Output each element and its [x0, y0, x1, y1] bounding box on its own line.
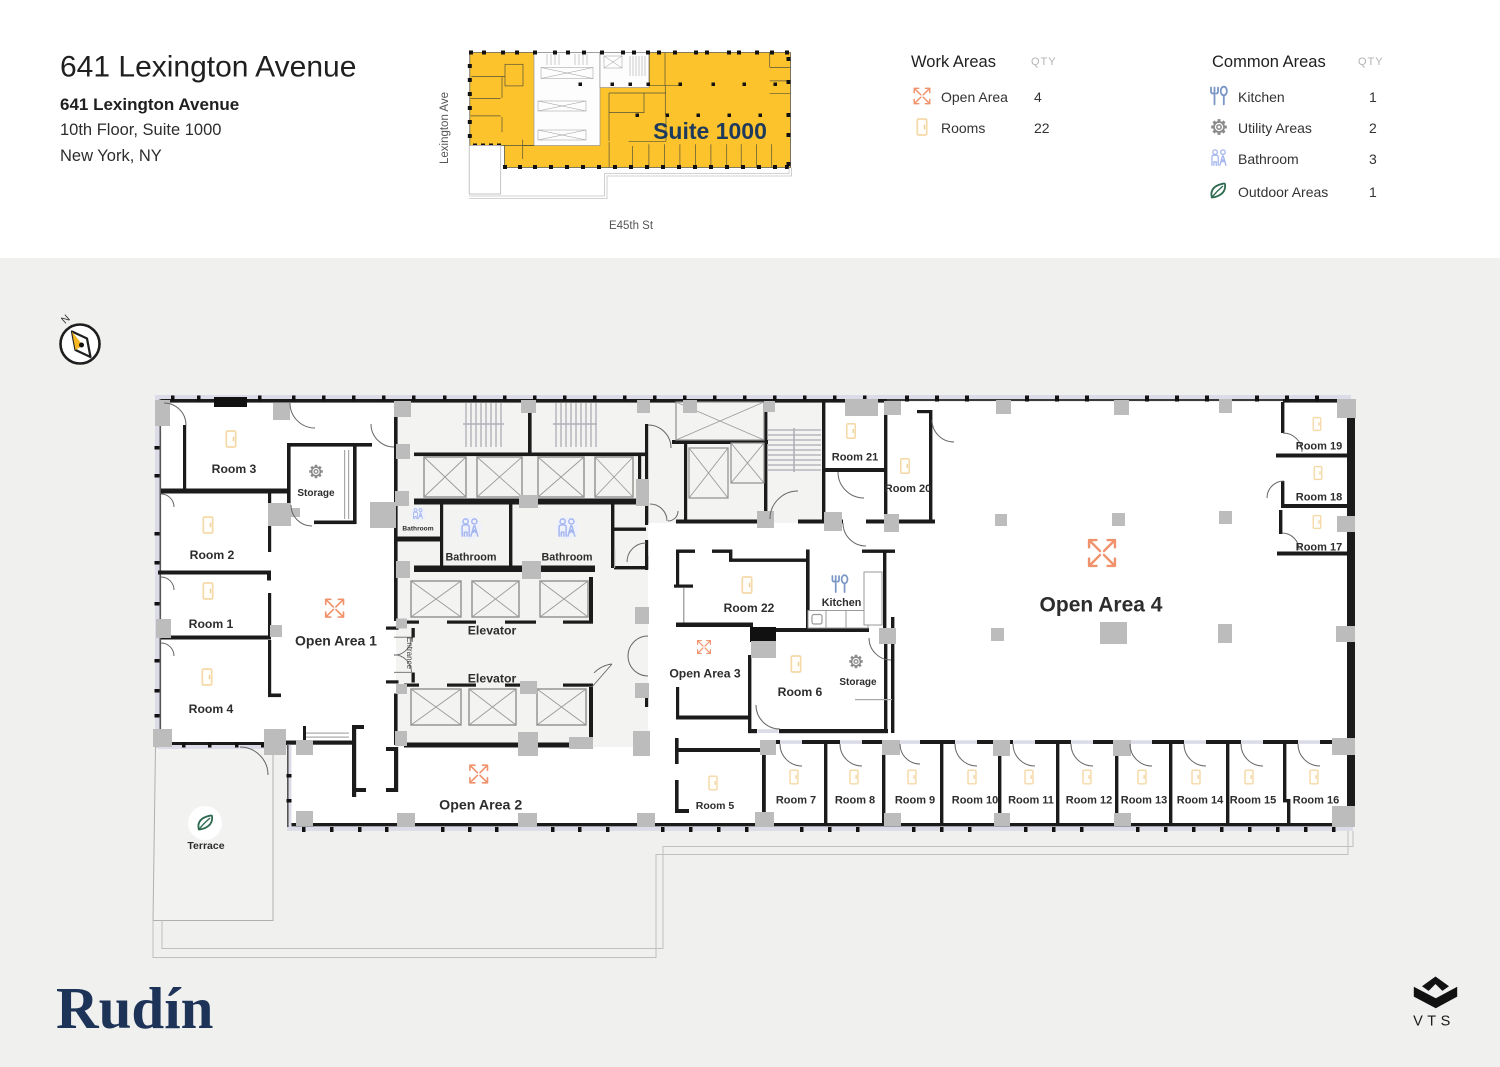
- svg-text:Rudín: Rudín: [56, 975, 213, 1041]
- svg-text:Room 2: Room 2: [190, 548, 235, 562]
- svg-text:Room 12: Room 12: [1066, 795, 1112, 807]
- svg-text:Room 21: Room 21: [832, 452, 878, 464]
- svg-text:Lexington Ave: Lexington Ave: [439, 92, 451, 164]
- svg-text:Room 11: Room 11: [1008, 795, 1054, 807]
- svg-text:Bathroom: Bathroom: [446, 552, 497, 564]
- svg-text:Storage: Storage: [839, 677, 877, 688]
- svg-text:Bathroom: Bathroom: [542, 552, 593, 564]
- svg-text:Room 13: Room 13: [1121, 795, 1167, 807]
- svg-text:641 Lexington Avenue: 641 Lexington Avenue: [60, 51, 356, 84]
- svg-text:22: 22: [1034, 120, 1050, 136]
- svg-text:New York, NY: New York, NY: [60, 147, 162, 165]
- svg-text:Room 19: Room 19: [1296, 441, 1342, 453]
- svg-text:3: 3: [1369, 151, 1377, 167]
- svg-text:Room 8: Room 8: [835, 795, 875, 807]
- svg-text:10th Floor, Suite 1000: 10th Floor, Suite 1000: [60, 121, 221, 139]
- svg-text:Common Areas: Common Areas: [1212, 53, 1326, 71]
- svg-text:E45th St: E45th St: [609, 220, 654, 232]
- svg-text:Room 18: Room 18: [1296, 492, 1342, 504]
- svg-text:Rooms: Rooms: [941, 120, 985, 136]
- svg-text:Kitchen: Kitchen: [1238, 89, 1285, 105]
- svg-text:Suite 1000: Suite 1000: [653, 118, 767, 144]
- svg-text:Elevator: Elevator: [468, 672, 517, 686]
- svg-text:Terrace: Terrace: [187, 840, 224, 852]
- svg-text:Room 5: Room 5: [696, 800, 735, 812]
- svg-text:Bathroom: Bathroom: [1238, 151, 1299, 167]
- svg-text:Room 6: Room 6: [778, 685, 823, 699]
- svg-text:Room 22: Room 22: [724, 601, 775, 615]
- svg-text:1: 1: [1369, 184, 1377, 200]
- svg-text:VTS: VTS: [1413, 1014, 1455, 1030]
- svg-text:Open Area 1: Open Area 1: [295, 633, 377, 649]
- svg-text:641 Lexington Avenue: 641 Lexington Avenue: [60, 95, 239, 114]
- svg-text:Room 4: Room 4: [189, 702, 234, 716]
- svg-text:Room 1: Room 1: [189, 617, 234, 631]
- svg-text:Room 17: Room 17: [1296, 542, 1342, 554]
- svg-text:Room 15: Room 15: [1230, 795, 1276, 807]
- svg-text:Entrance: Entrance: [405, 637, 414, 670]
- svg-text:Room 14: Room 14: [1177, 795, 1224, 807]
- svg-text:Room 10: Room 10: [952, 795, 998, 807]
- svg-text:Room 3: Room 3: [212, 462, 257, 476]
- svg-text:1: 1: [1369, 89, 1377, 105]
- svg-text:Work Areas: Work Areas: [911, 53, 996, 71]
- svg-text:Room 7: Room 7: [776, 795, 816, 807]
- svg-text:Room 9: Room 9: [895, 795, 935, 807]
- svg-text:Open Area 4: Open Area 4: [1040, 594, 1163, 617]
- svg-text:Room 16: Room 16: [1293, 795, 1339, 807]
- svg-text:Open Area 3: Open Area 3: [669, 667, 741, 681]
- svg-text:Outdoor Areas: Outdoor Areas: [1238, 184, 1328, 200]
- svg-text:4: 4: [1034, 89, 1042, 105]
- svg-text:Utility Areas: Utility Areas: [1238, 120, 1312, 136]
- svg-text:QTY: QTY: [1358, 56, 1384, 68]
- svg-text:Room 20: Room 20: [885, 483, 931, 495]
- svg-text:2: 2: [1369, 120, 1377, 136]
- svg-text:Kitchen: Kitchen: [822, 597, 862, 609]
- svg-text:Bathroom: Bathroom: [402, 526, 433, 533]
- svg-text:Storage: Storage: [297, 488, 335, 499]
- svg-text:Open Area: Open Area: [941, 89, 1008, 105]
- svg-text:Open Area 2: Open Area 2: [439, 798, 522, 814]
- svg-text:QTY: QTY: [1031, 56, 1057, 68]
- svg-text:Elevator: Elevator: [468, 624, 517, 638]
